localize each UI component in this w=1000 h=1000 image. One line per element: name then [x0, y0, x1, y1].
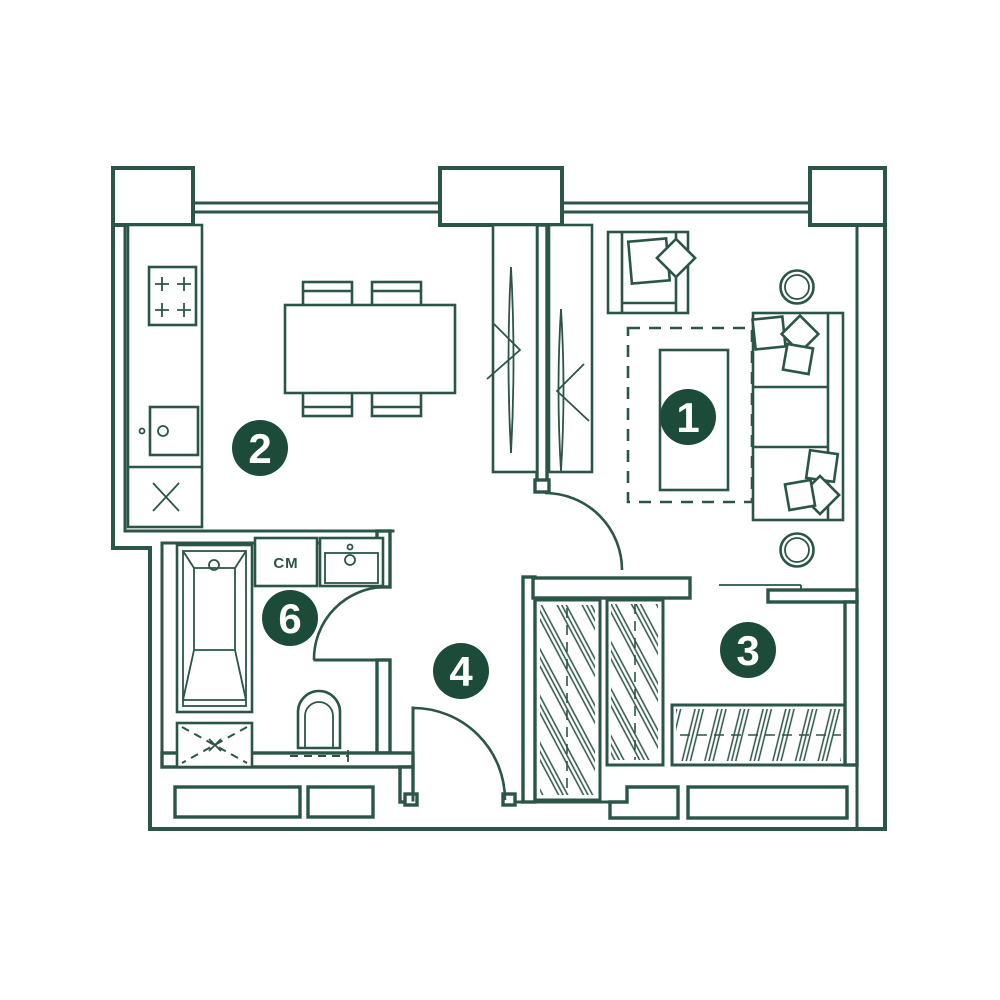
room-badge-corridor: 4 — [433, 643, 489, 699]
sofa-pillow — [785, 480, 815, 510]
washing-machine: CM — [255, 538, 317, 586]
room-number-4: 4 — [449, 648, 473, 695]
sliding-panel-frame-left — [493, 225, 537, 472]
room-badge-kitchen: 2 — [232, 420, 288, 476]
bathtub — [177, 545, 252, 712]
sliding-panel-frame-right — [549, 225, 592, 472]
duct-shaft — [177, 723, 252, 767]
kitchen-dining — [128, 225, 455, 527]
room-number-6: 6 — [278, 595, 301, 642]
corridor-wall-right — [523, 577, 535, 802]
wall-core-bottom-right-2 — [688, 787, 847, 818]
hall-wall-top-left — [533, 578, 690, 598]
wall-core-bottom-left-2 — [308, 787, 373, 817]
bathroom-door — [314, 587, 386, 660]
wall-pilaster-top-right — [810, 168, 885, 225]
floor-plan-drawing: CM 1 2 3 4 — [0, 0, 1000, 1000]
room-badge-living: 1 — [660, 389, 716, 445]
entrance-door — [413, 708, 505, 800]
wall-core-bottom-right-1 — [610, 787, 678, 818]
floor-lamp-bottom — [781, 534, 814, 567]
wardrobe-middle — [607, 600, 663, 765]
sofa-pillow — [783, 344, 813, 374]
wall-pilaster-top-left — [113, 168, 193, 225]
room-number-3: 3 — [736, 627, 759, 674]
partition-wall-cap — [535, 480, 549, 492]
wall-pilaster-top-middle — [440, 168, 562, 225]
wardrobe-left — [535, 600, 600, 800]
wall-core-bottom-left-1 — [175, 787, 300, 817]
wardrobe-hall — [535, 600, 845, 800]
washing-machine-label: CM — [273, 555, 298, 572]
living-room-door — [545, 493, 622, 570]
stove — [149, 267, 196, 325]
wardrobe-bottom — [672, 705, 845, 765]
dining-table — [285, 282, 455, 416]
sofa-pillow — [753, 317, 786, 350]
floor-plan: CM 1 2 3 4 — [0, 0, 1000, 1000]
living-room — [608, 232, 843, 567]
floor-lamp-top — [781, 271, 814, 304]
sofa — [753, 313, 843, 520]
bathroom-sink — [320, 538, 383, 586]
bathroom: CM — [177, 538, 383, 767]
room-number-2: 2 — [248, 425, 271, 472]
hall-wall-top-right — [768, 590, 857, 602]
room-number-1: 1 — [676, 394, 699, 441]
hall-wall-right — [845, 602, 857, 765]
room-badge-bathroom: 6 — [262, 590, 318, 646]
bathroom-wall-right-lower — [377, 660, 390, 753]
entrance-jamb-left — [405, 794, 417, 805]
room-badge-hall: 3 — [720, 622, 776, 678]
dining-table-top — [285, 305, 455, 393]
partition-wall-center — [537, 225, 547, 482]
armchair — [608, 232, 695, 313]
